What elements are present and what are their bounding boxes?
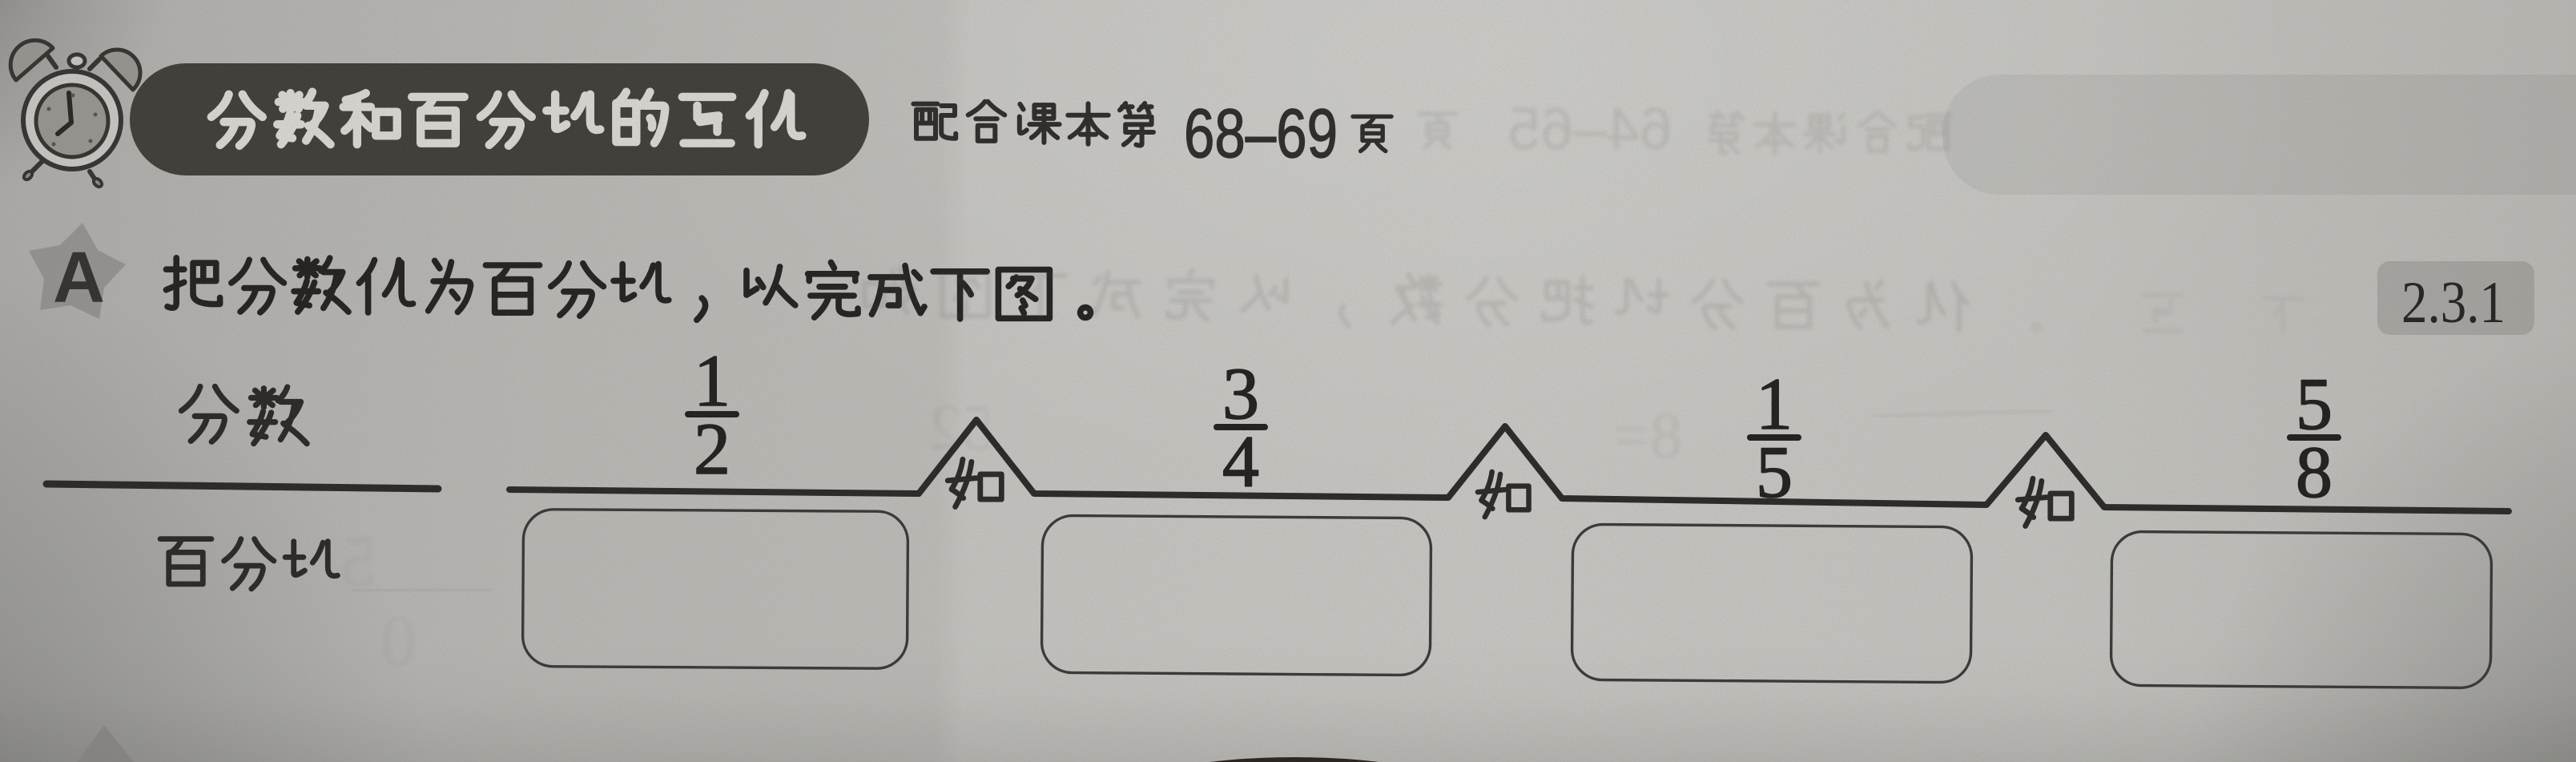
svg-text:64–65: 64–65 bbox=[1507, 95, 1672, 162]
svg-text:52: 52 bbox=[929, 393, 993, 463]
svg-text:8: 8 bbox=[2296, 431, 2332, 513]
svg-text:2: 2 bbox=[694, 408, 731, 490]
svg-text:5: 5 bbox=[1756, 431, 1793, 513]
svg-text:8=: 8= bbox=[1614, 401, 1682, 471]
svg-text:0: 0 bbox=[380, 602, 417, 681]
svg-text:A: A bbox=[53, 238, 105, 318]
svg-text:4: 4 bbox=[1222, 421, 1259, 502]
svg-text:2.3.1: 2.3.1 bbox=[2401, 270, 2506, 336]
svg-text:68–69: 68–69 bbox=[1184, 95, 1338, 172]
